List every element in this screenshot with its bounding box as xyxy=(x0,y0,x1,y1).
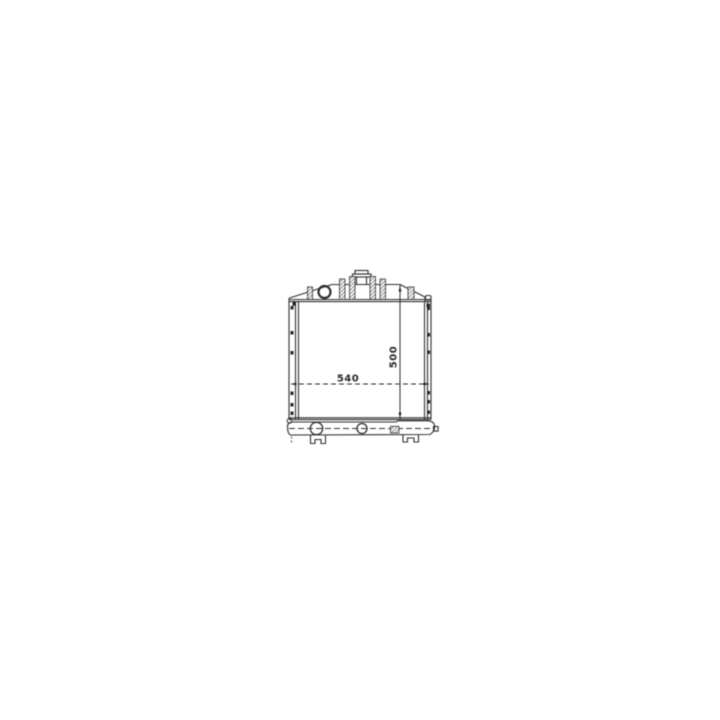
height-dimension-label: 500 xyxy=(389,346,400,368)
mounting-foot-left xyxy=(311,436,326,444)
width-dim-arrow-right xyxy=(424,382,430,385)
radiator-technical-drawing: 540 500 xyxy=(0,0,720,720)
rib-6 xyxy=(408,287,414,300)
width-dimension-label: 540 xyxy=(337,374,359,385)
rib-3 xyxy=(350,277,356,300)
rib-2 xyxy=(340,279,346,300)
drawing-page: 540 500 xyxy=(0,0,720,720)
rib-1 xyxy=(308,287,313,300)
top-tank-ribs xyxy=(308,277,415,300)
height-dim-arrow-bottom xyxy=(398,413,401,419)
inlet-ring xyxy=(319,286,331,298)
height-dim-arrow-top xyxy=(398,286,401,292)
rib-4 xyxy=(370,277,376,300)
mounting-foot-right xyxy=(403,435,419,443)
drain-fitting xyxy=(391,426,400,433)
width-dim-arrow-left xyxy=(291,382,297,385)
width-dimension: 540 xyxy=(291,374,429,386)
mounting-feet xyxy=(311,435,419,444)
left-side-frame xyxy=(289,298,299,420)
bottom-tank xyxy=(287,418,438,443)
height-dimension: 500 xyxy=(389,285,402,419)
rib-5 xyxy=(380,279,386,300)
